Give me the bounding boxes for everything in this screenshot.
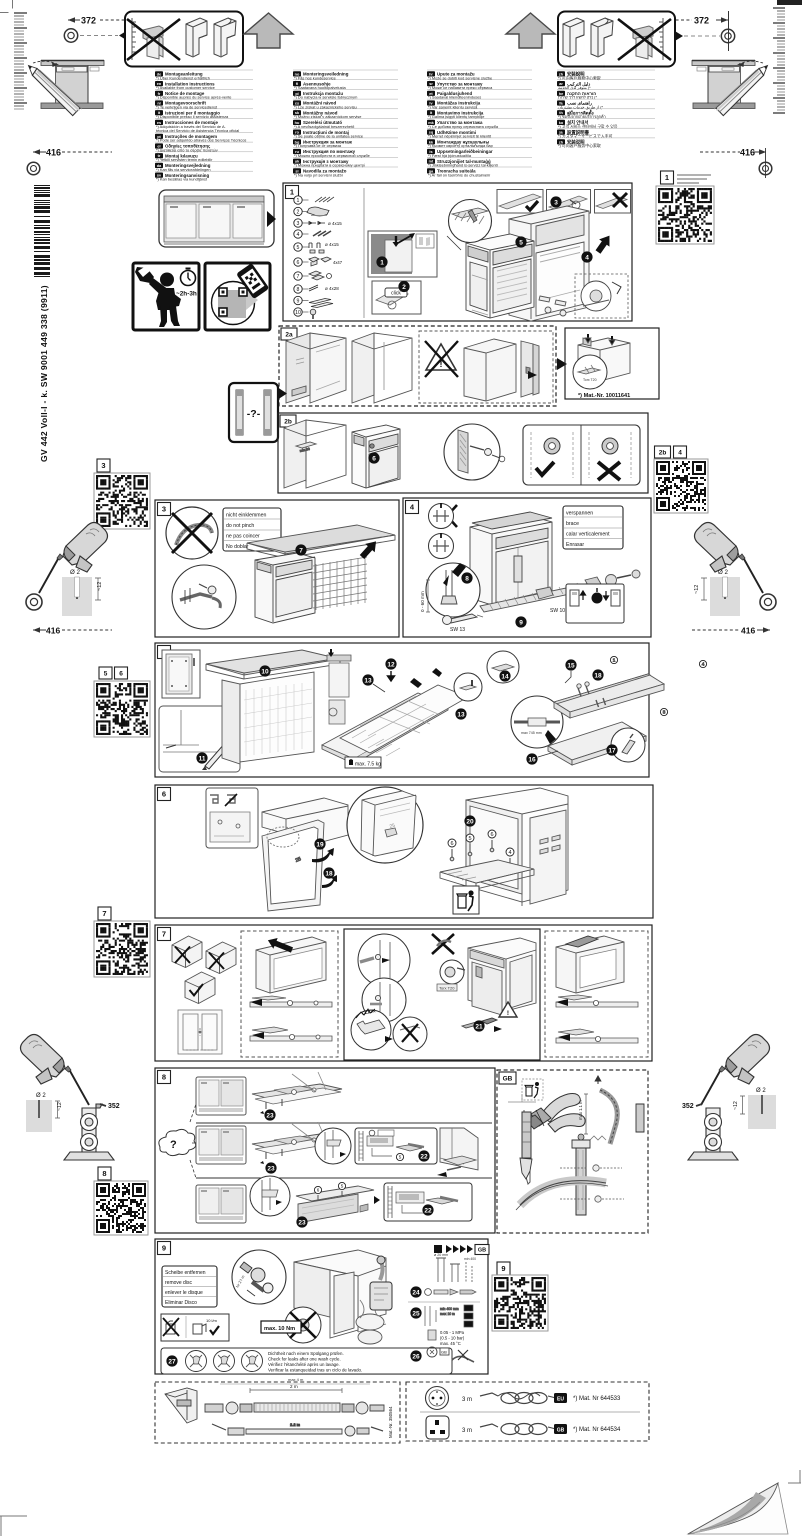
svg-text:*) Na voljo pri servisni služb: *) Na voljo pri servisni službi	[294, 172, 343, 177]
svg-text:2.2 m: 2.2 m	[290, 1422, 301, 1427]
svg-text:4: 4	[702, 662, 705, 667]
svg-text:352: 352	[108, 1103, 120, 1110]
svg-text:~12: ~12	[57, 1102, 63, 1111]
svg-text:9: 9	[501, 1264, 505, 1273]
svg-text:ø 4x15: ø 4x15	[325, 242, 339, 247]
svg-text:13: 13	[457, 711, 465, 718]
svg-text:3: 3	[162, 505, 166, 514]
svg-text:(0.5 - 10 bar): (0.5 - 10 bar)	[440, 1336, 465, 1341]
svg-text:GB: GB	[503, 1075, 513, 1082]
svg-text:?: ?	[170, 1139, 177, 1151]
svg-text:GB: GB	[478, 1247, 486, 1253]
svg-text:20: 20	[466, 818, 474, 825]
svg-text:max 745 mm: max 745 mm	[521, 731, 542, 735]
svg-text:remove disc: remove disc	[165, 1280, 192, 1286]
svg-text:0 - 60 mm: 0 - 60 mm	[420, 591, 425, 612]
svg-text:9: 9	[162, 1244, 166, 1253]
svg-text:4: 4	[297, 232, 300, 238]
svg-text:*) Mat.-Nr. 10011641: *) Mat.-Nr. 10011641	[578, 393, 630, 399]
svg-text:enlever le disque: enlever le disque	[165, 1290, 203, 1296]
svg-text:27: 27	[168, 1358, 176, 1365]
svg-text:No doblar: No doblar	[226, 544, 249, 550]
svg-text:3: 3	[554, 199, 558, 206]
svg-text:10 l/m: 10 l/m	[206, 1318, 218, 1323]
svg-text:5: 5	[519, 239, 523, 246]
svg-text:9: 9	[519, 619, 523, 626]
svg-text:6: 6	[297, 260, 300, 266]
svg-text:16: 16	[528, 756, 536, 763]
svg-text:1: 1	[613, 658, 616, 663]
svg-text:~12: ~12	[97, 582, 103, 591]
svg-text:2b: 2b	[284, 418, 292, 425]
svg-text:23: 23	[298, 1219, 306, 1226]
svg-text:3 m: 3 m	[462, 1428, 472, 1434]
svg-text:Verificar la estanqueidad tras: Verificar la estanqueidad tras un ciclo …	[268, 1368, 362, 1373]
svg-text:max 10 m: max 10 m	[440, 1312, 455, 1316]
svg-text:Torx T20: Torx T20	[439, 986, 455, 991]
svg-text:Mat.-Nr. 350564: Mat.-Nr. 350564	[388, 1406, 393, 1438]
svg-text:6: 6	[317, 1188, 320, 1193]
svg-text:352: 352	[682, 1103, 694, 1110]
svg-text:12: 12	[387, 661, 395, 668]
svg-text:Ø 2: Ø 2	[756, 1088, 766, 1094]
svg-text:22: 22	[420, 1153, 428, 1160]
svg-text:Ø 2: Ø 2	[718, 569, 729, 576]
svg-text:2: 2	[402, 284, 406, 291]
svg-text:8: 8	[297, 287, 300, 293]
svg-text:3: 3	[297, 221, 300, 227]
svg-text:4: 4	[585, 254, 589, 261]
svg-text:18: 18	[594, 672, 602, 679]
svg-text:Dichtheit nach einem Spülgang: Dichtheit nach einem Spülgang prüfen.	[268, 1351, 344, 1356]
svg-text:SW 13: SW 13	[450, 627, 465, 633]
svg-text:8: 8	[102, 1169, 106, 1178]
svg-text:0.05 - 1 MPa: 0.05 - 1 MPa	[440, 1330, 465, 1335]
svg-text:max. 7.5 kg: max. 7.5 kg	[355, 762, 381, 768]
svg-text:11: 11	[199, 755, 206, 762]
svg-text:max 1.1 m: max 1.1 m	[578, 1100, 583, 1120]
svg-text:6: 6	[372, 455, 376, 462]
svg-text:2 m: 2 m	[290, 1384, 298, 1389]
svg-text:5: 5	[468, 836, 471, 842]
svg-text:GB: GB	[557, 1427, 565, 1433]
svg-text:brace: brace	[566, 521, 579, 527]
svg-text:Torx T20: Torx T20	[583, 378, 597, 382]
svg-text:*) Kan besällas via kundtjänst: *) Kan besällas via kundtjänst	[156, 177, 208, 182]
svg-text:10: 10	[295, 310, 301, 316]
svg-text:*) Mat. Nr 644534: *) Mat. Nr 644534	[573, 1427, 621, 1433]
svg-text:*) Mat. Nr 644533: *) Mat. Nr 644533	[573, 1396, 621, 1402]
svg-text:*) Ar fáil ón tseirbhís do chu: *) Ar fáil ón tseirbhís do chustaiméirí	[428, 172, 491, 177]
svg-text:max 4 m: max 4 m	[288, 1377, 304, 1382]
svg-text:22: 22	[424, 1207, 432, 1214]
svg-text:~12: ~12	[694, 585, 700, 594]
svg-text:18: 18	[325, 870, 333, 877]
svg-text:9: 9	[297, 298, 300, 304]
svg-text:7: 7	[162, 930, 166, 939]
svg-text:Ø 2: Ø 2	[70, 569, 81, 576]
svg-text:Scheibe entfernen: Scheibe entfernen	[165, 1270, 206, 1276]
svg-text:4x47: 4x47	[333, 260, 343, 265]
svg-text:3: 3	[101, 461, 105, 470]
svg-text:ø 20 mm: ø 20 mm	[434, 1253, 448, 1257]
svg-text:416: 416	[740, 148, 755, 158]
svg-text:4: 4	[678, 449, 682, 456]
svg-text:max. 10 Nm: max. 10 Nm	[264, 1326, 295, 1332]
svg-text:max. 45 °C: max. 45 °C	[440, 1341, 461, 1346]
svg-text:2: 2	[297, 209, 300, 215]
svg-text:~2h-3h: ~2h-3h	[176, 291, 197, 298]
svg-text:ne pas coincer: ne pas coincer	[226, 534, 260, 540]
svg-text:Ø 2: Ø 2	[36, 1093, 46, 1099]
svg-text:21: 21	[475, 1023, 483, 1030]
svg-text:14: 14	[501, 673, 509, 680]
svg-text:26: 26	[412, 1353, 420, 1360]
svg-text:6: 6	[162, 790, 166, 799]
svg-text:23: 23	[266, 1112, 274, 1119]
svg-text:23: 23	[267, 1165, 275, 1172]
svg-text:~12: ~12	[733, 1101, 739, 1110]
svg-text:2a: 2a	[285, 331, 293, 338]
svg-text:8: 8	[465, 575, 469, 582]
svg-text:nicht einklemmen: nicht einklemmen	[226, 513, 266, 519]
svg-text:416: 416	[741, 626, 755, 636]
svg-text:6: 6	[119, 670, 123, 677]
svg-text:do not pinch: do not pinch	[226, 523, 254, 529]
svg-text:-?-: -?-	[247, 408, 261, 420]
svg-text:5: 5	[399, 1155, 402, 1160]
svg-text:ø 4x15: ø 4x15	[328, 221, 342, 226]
svg-text:Check for leaks after one wash: Check for leaks after one wash cycle.	[268, 1357, 341, 1362]
svg-text:7: 7	[299, 547, 303, 554]
svg-text:*) 可向客户服务中心索取: *) 可向客户服务中心索取	[558, 143, 601, 148]
svg-text:1: 1	[665, 173, 669, 182]
svg-text:Eliminar Disco: Eliminar Disco	[165, 1300, 197, 1306]
svg-text:4: 4	[508, 850, 511, 856]
svg-text:416: 416	[46, 148, 61, 158]
svg-text:372: 372	[81, 15, 96, 25]
svg-text:416: 416	[46, 626, 60, 636]
svg-text:min 400: min 400	[464, 1257, 476, 1261]
svg-text:1: 1	[380, 259, 384, 266]
svg-text:Enrasar: Enrasar	[566, 542, 584, 548]
svg-text:24: 24	[412, 1289, 420, 1296]
svg-text:19: 19	[316, 841, 324, 848]
svg-text:calar verticalement: calar verticalement	[566, 532, 610, 538]
svg-text:15: 15	[567, 662, 575, 669]
svg-text:17: 17	[608, 747, 616, 754]
svg-text:EU: EU	[557, 1396, 564, 1402]
svg-text:Vérifiez l’étanchéité après un: Vérifiez l’étanchéité après un lavage.	[268, 1362, 340, 1367]
svg-text:!: !	[507, 1010, 509, 1017]
svg-text:GB: GB	[441, 1350, 447, 1355]
svg-text:372: 372	[694, 15, 709, 25]
svg-text:ø 4x28: ø 4x28	[325, 286, 339, 291]
svg-text:6: 6	[450, 841, 453, 847]
svg-text:5: 5	[341, 1184, 344, 1189]
svg-text:verspannen: verspannen	[566, 511, 593, 517]
svg-text:3 m: 3 m	[462, 1397, 472, 1403]
svg-text:5: 5	[104, 670, 108, 677]
svg-text:7: 7	[102, 909, 106, 918]
svg-text:3: 3	[663, 710, 666, 715]
svg-text:GV 442 Voll-I - k. SW 9001 44: GV 442 Voll-I - k. SW 9001 449 338 (9911…	[39, 285, 49, 462]
svg-text:7: 7	[297, 274, 300, 280]
svg-text:min 400 mm: min 400 mm	[440, 1307, 459, 1311]
svg-text:2b: 2b	[659, 449, 667, 456]
svg-text:5: 5	[297, 245, 300, 251]
svg-text:8: 8	[162, 1073, 166, 1082]
svg-text:click: click	[391, 291, 401, 297]
svg-text:25: 25	[412, 1310, 420, 1317]
svg-text:13: 13	[364, 677, 372, 684]
svg-text:1: 1	[297, 198, 300, 204]
svg-text:6: 6	[490, 832, 493, 838]
svg-text:1: 1	[290, 188, 294, 197]
svg-text:SW 10: SW 10	[550, 608, 565, 614]
svg-text:10: 10	[261, 668, 269, 675]
